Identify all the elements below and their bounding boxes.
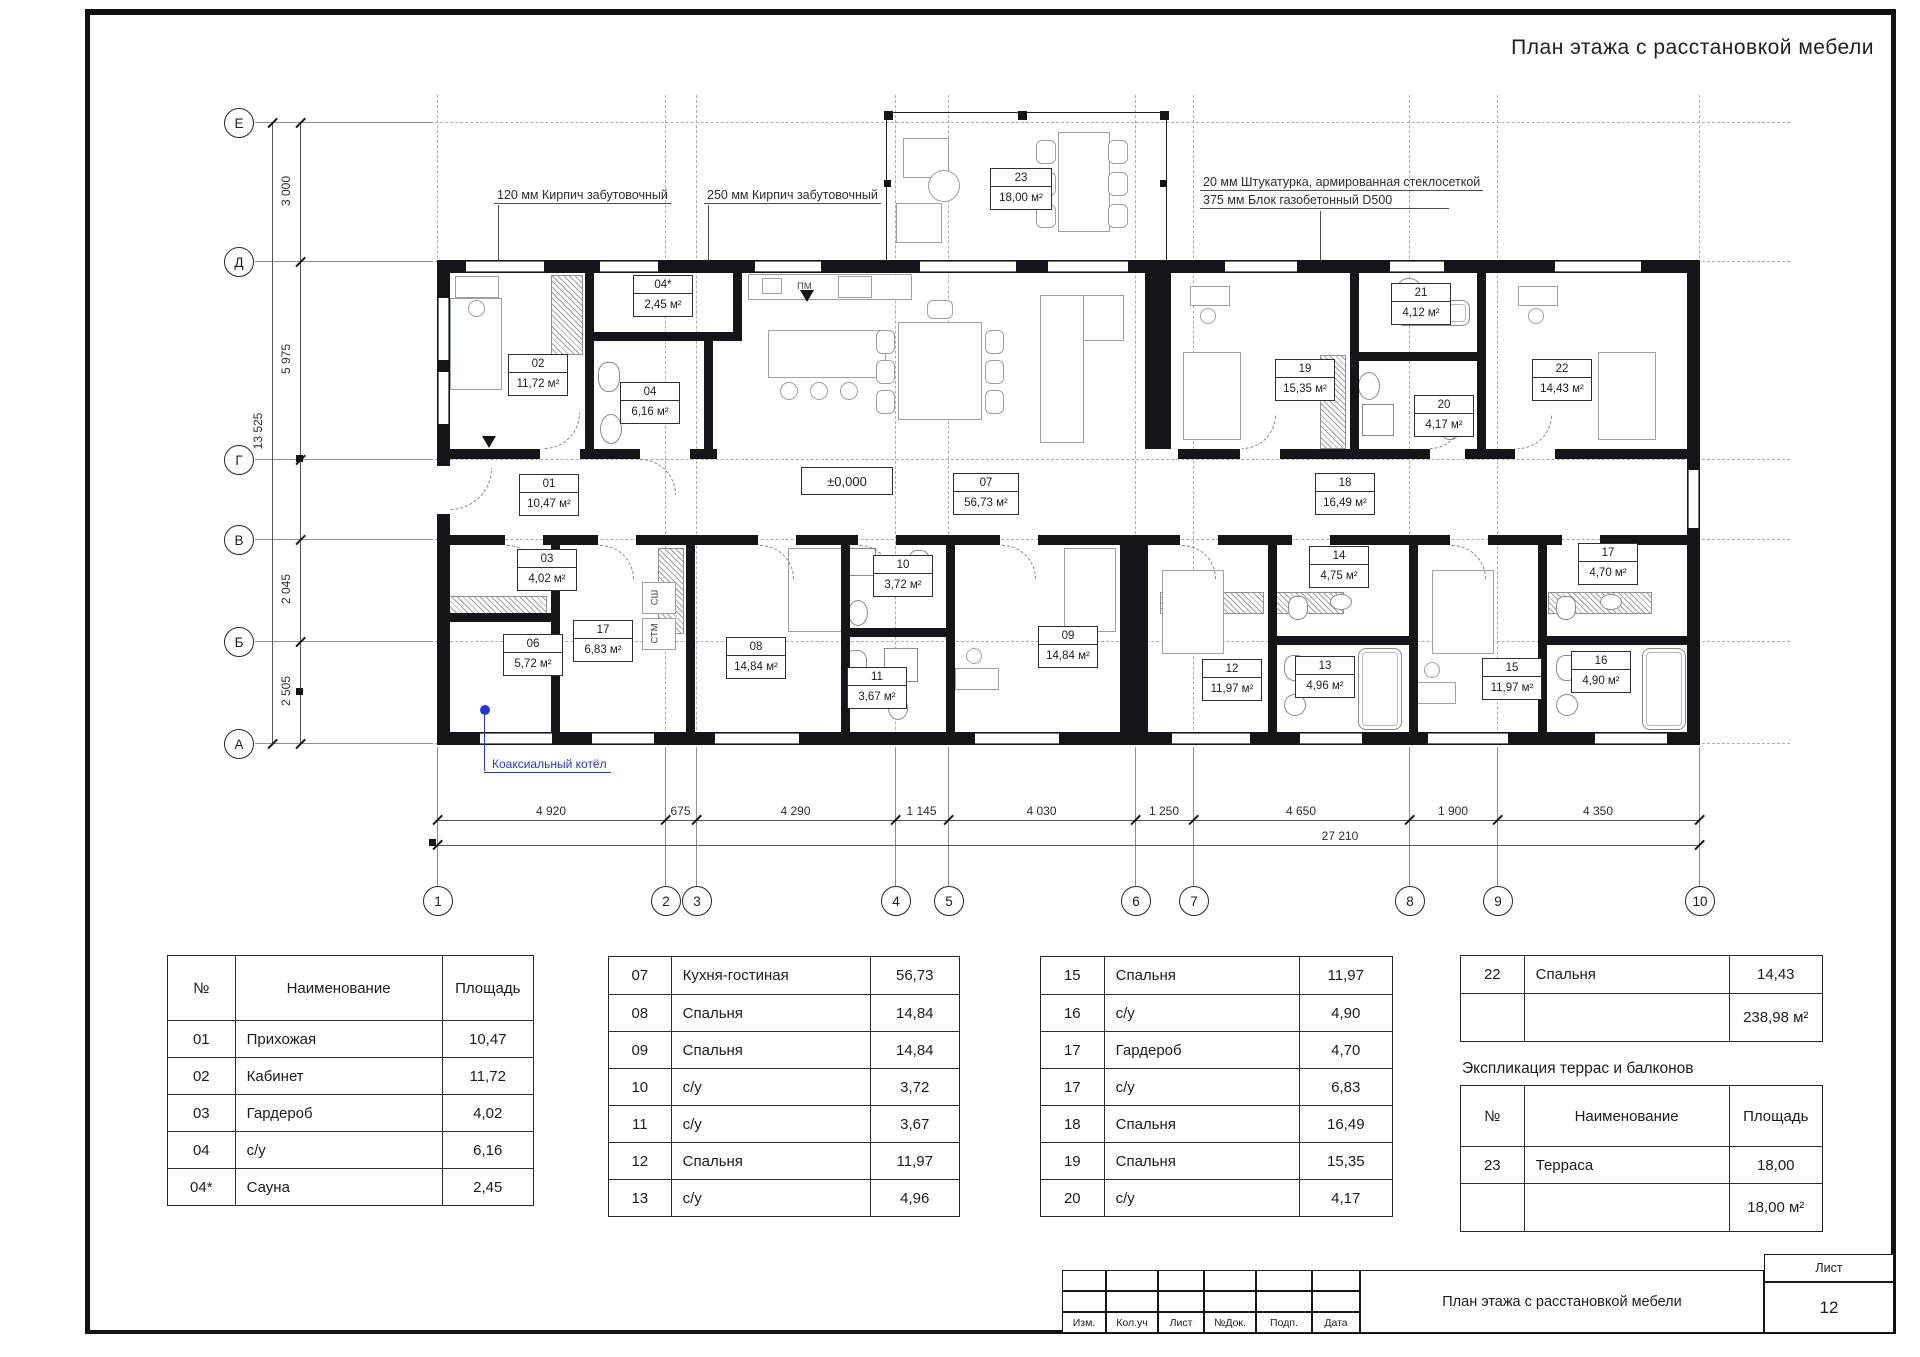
dimension-square xyxy=(296,688,303,695)
table-row: 09Спальня14,84 xyxy=(609,1031,959,1068)
room-number: 19 xyxy=(1276,360,1334,378)
dimension-line-bottom-segments xyxy=(437,820,1699,821)
annotation-plaster: 20 мм Штукатурка, армированная стеклосет… xyxy=(1200,175,1483,191)
extension-line xyxy=(895,748,896,855)
level-mark: ±0,000 xyxy=(801,467,893,495)
room-area: 4,02 м² xyxy=(518,568,576,590)
arrow-icon xyxy=(482,436,496,448)
table-row: №НаименованиеПлощадь xyxy=(1461,1086,1822,1146)
room-label: 0756,73 м² xyxy=(953,473,1019,515)
extension-line xyxy=(665,748,666,855)
furniture-round xyxy=(1528,308,1544,324)
room-label: 1211,97 м² xyxy=(1202,659,1262,701)
wall-segment xyxy=(1350,352,1486,361)
leader-line xyxy=(708,205,709,261)
furniture xyxy=(1183,352,1241,440)
table-cell: 19 xyxy=(1041,1143,1104,1179)
table-cell: с/у xyxy=(671,1069,870,1105)
furniture xyxy=(1432,570,1494,654)
wall-segment xyxy=(1555,449,1700,459)
room-label: 04*2,45 м² xyxy=(633,275,693,317)
toilet xyxy=(1288,596,1308,620)
extension-line xyxy=(255,743,433,744)
sink xyxy=(1330,594,1352,610)
furniture-round xyxy=(780,382,798,400)
table-row: 22Спальня14,43 xyxy=(1461,956,1822,993)
wall-segment xyxy=(884,111,893,120)
furniture-round xyxy=(468,300,485,317)
toilet xyxy=(1556,596,1576,620)
window xyxy=(1555,261,1641,272)
grid-bubble-4: 4 xyxy=(881,886,911,916)
furniture-round xyxy=(966,648,982,664)
stamp-cell xyxy=(1106,1270,1158,1291)
wall-segment xyxy=(690,449,717,459)
table-cell: № xyxy=(168,956,235,1020)
dimension-text: 1 900 xyxy=(1408,804,1498,818)
explication-table-1: №НаименованиеПлощадь01Прихожая10,4702Каб… xyxy=(167,955,534,1206)
wall-segment xyxy=(1465,449,1515,459)
table-cell xyxy=(1461,1184,1524,1231)
boiler-dot xyxy=(480,705,490,715)
extension-line xyxy=(255,261,433,262)
window xyxy=(1688,470,1699,528)
wall-segment xyxy=(1218,535,1292,545)
table-cell: 16 xyxy=(1041,995,1104,1031)
extension-line xyxy=(1135,748,1136,855)
table-cell: с/у xyxy=(235,1132,442,1168)
grid-bubble-8: 8 xyxy=(1395,886,1425,916)
explication-table-2: 07Кухня-гостиная56,7308Спальня14,8409Спа… xyxy=(608,956,960,1217)
page-title: План этажа с расстановкой мебели xyxy=(1511,36,1874,60)
room-number: 13 xyxy=(1296,657,1354,675)
grid-bubble-3: 3 xyxy=(682,886,712,916)
room-area: 6,83 м² xyxy=(574,639,632,661)
wall-segment xyxy=(585,273,594,449)
room-area: 11,97 м² xyxy=(1203,678,1261,700)
table-cell: 4,70 xyxy=(1299,1032,1392,1068)
table-cell: 14,84 xyxy=(870,995,959,1031)
window xyxy=(1225,261,1297,272)
wall-segment xyxy=(1477,273,1486,449)
grid-bubble-Д: Д xyxy=(224,247,254,277)
furniture xyxy=(455,276,499,298)
table-cell: 08 xyxy=(609,995,671,1031)
dimension-text-total: 27 210 xyxy=(1285,829,1395,843)
room-area: 14,84 м² xyxy=(1039,645,1097,667)
chair xyxy=(1108,140,1128,164)
furniture xyxy=(1412,682,1456,704)
wall-segment xyxy=(1018,111,1027,120)
stamp-cell xyxy=(1204,1291,1256,1312)
table-cell: 18,00 xyxy=(1729,1147,1822,1183)
table-cell: Гардероб xyxy=(1104,1032,1299,1068)
table-row: 03Гардероб4,02 xyxy=(168,1094,533,1131)
room-label: 204,17 м² xyxy=(1414,395,1474,437)
room-number: 20 xyxy=(1415,396,1473,414)
stamp-cell xyxy=(1062,1291,1106,1312)
room-area: 14,84 м² xyxy=(727,656,785,678)
dimension-square xyxy=(429,839,436,846)
furniture xyxy=(955,668,999,690)
stamp-cell xyxy=(1158,1291,1204,1312)
room-area: 2,45 м² xyxy=(634,294,692,316)
wall-segment xyxy=(437,613,551,622)
dimension-line-bottom-total xyxy=(437,845,1699,846)
table-cell: 4,02 xyxy=(442,1095,533,1131)
wall-segment xyxy=(1038,535,1180,545)
dimension-text: 4 030 xyxy=(997,804,1087,818)
stamp-cell-label: Подп. xyxy=(1256,1312,1312,1333)
dimension-text: 4 350 xyxy=(1553,804,1643,818)
chair xyxy=(985,330,1004,354)
room-label: 1915,35 м² xyxy=(1275,359,1335,401)
table-cell: Спальня xyxy=(1104,957,1299,994)
wall-segment xyxy=(896,535,1000,545)
table-cell: 18 xyxy=(1041,1106,1104,1142)
table-row: №НаименованиеПлощадь xyxy=(168,956,533,1020)
bubble-stem xyxy=(1409,855,1410,886)
door-arc xyxy=(1182,545,1216,579)
table-row: 01Прихожая10,47 xyxy=(168,1020,533,1057)
room-label: 2318,00 м² xyxy=(990,168,1052,210)
stamp-cell xyxy=(1106,1291,1158,1312)
room-label: 144,75 м² xyxy=(1309,546,1369,588)
room-area: 3,72 м² xyxy=(874,574,932,596)
table-cell: 20 xyxy=(1041,1180,1104,1216)
grid-bubble-Е: Е xyxy=(224,108,254,138)
wall-segment xyxy=(437,449,540,459)
wall-segment xyxy=(704,341,713,449)
door-arc xyxy=(544,413,580,449)
room-number: 06 xyxy=(504,635,562,653)
table-cell: с/у xyxy=(671,1180,870,1216)
table-cell: 03 xyxy=(168,1095,235,1131)
stamp-cell xyxy=(1312,1291,1360,1312)
room-number: 07 xyxy=(954,474,1018,492)
annotation-aerated-block: 375 мм Блок газобетонный D500 xyxy=(1200,193,1449,209)
leader-line xyxy=(1320,211,1321,261)
table-row: 20с/у4,17 xyxy=(1041,1179,1392,1216)
wall-segment xyxy=(1488,535,1562,545)
furniture xyxy=(838,276,872,298)
table-cell: Спальня xyxy=(1104,1143,1299,1179)
room-area: 4,90 м² xyxy=(1572,670,1630,692)
dimension-square xyxy=(296,455,303,462)
stamp-cell xyxy=(1256,1270,1312,1291)
bubble-stem xyxy=(1497,855,1498,886)
table-cell: с/у xyxy=(671,1106,870,1142)
table-cell: 4,90 xyxy=(1299,995,1392,1031)
room-area: 4,96 м² xyxy=(1296,675,1354,697)
sink xyxy=(1556,694,1578,716)
window xyxy=(1390,261,1444,272)
room-label: 0110,47 м² xyxy=(519,474,579,516)
grid-bubble-9: 9 xyxy=(1483,886,1513,916)
room-area: 3,67 м² xyxy=(848,686,906,708)
table-cell: 14,43 xyxy=(1729,956,1822,993)
table-cell xyxy=(1524,994,1729,1041)
room-number: 11 xyxy=(848,668,906,686)
arrow-icon xyxy=(800,290,814,302)
room-label: 1511,97 м² xyxy=(1482,658,1542,700)
drawing-sheet: План этажа с расстановкой мебели 120 мм … xyxy=(0,0,1920,1357)
frame-top xyxy=(85,9,1895,15)
room-area: 16,49 м² xyxy=(1316,492,1374,514)
room-number: 14 xyxy=(1310,547,1368,565)
chair xyxy=(876,390,895,414)
window xyxy=(1300,733,1362,744)
room-number: 16 xyxy=(1572,652,1630,670)
grid-bubble-Г: Г xyxy=(224,445,254,475)
stamp-cell xyxy=(1062,1270,1106,1291)
furniture xyxy=(1598,352,1656,440)
shower xyxy=(1362,404,1394,436)
wall-segment xyxy=(1350,273,1359,449)
stamp-cell xyxy=(1158,1270,1204,1291)
table-row: 238,98 м² xyxy=(1461,993,1822,1041)
grid-bubble-А: А xyxy=(224,729,254,759)
table-cell: 17 xyxy=(1041,1032,1104,1068)
extension-line xyxy=(437,748,438,855)
wall-segment xyxy=(1330,535,1450,545)
table-cell: Гардероб xyxy=(235,1095,442,1131)
table-cell: 14,84 xyxy=(870,1032,959,1068)
furniture xyxy=(1058,132,1110,232)
furniture xyxy=(768,330,886,378)
table-cell: Спальня xyxy=(671,1143,870,1179)
sink xyxy=(600,414,622,444)
table-cell: 01 xyxy=(168,1021,235,1057)
room-label: 1816,49 м² xyxy=(1315,473,1375,515)
room-area: 56,73 м² xyxy=(954,492,1018,514)
wall-segment xyxy=(636,535,758,545)
room-number: 04 xyxy=(621,383,679,401)
bubble-stem xyxy=(1193,855,1194,886)
room-area: 6,16 м² xyxy=(621,401,679,423)
room-area: 14,43 м² xyxy=(1533,378,1591,400)
table-cell: Терраса xyxy=(1524,1147,1729,1183)
frame-left xyxy=(85,9,90,1334)
room-number: 01 xyxy=(520,475,578,493)
door-arc xyxy=(600,545,634,579)
grid-bubble-10: 10 xyxy=(1685,886,1715,916)
table-cell: 11,97 xyxy=(1299,957,1392,994)
wall-segment xyxy=(1145,273,1171,449)
room-number: 04* xyxy=(634,276,692,294)
room-label: 0211,72 м² xyxy=(508,354,568,396)
extension-line xyxy=(255,641,433,642)
titleblock-doc-title: План этажа с расстановкой мебели xyxy=(1360,1270,1764,1333)
room-number: 22 xyxy=(1533,360,1591,378)
frame-right xyxy=(1891,9,1896,1334)
stamp-cell xyxy=(1256,1291,1312,1312)
bubble-stem xyxy=(696,855,697,886)
table-cell: 11 xyxy=(609,1106,671,1142)
table-row: 18Спальня16,49 xyxy=(1041,1105,1392,1142)
window xyxy=(480,733,552,744)
sink xyxy=(1600,594,1622,610)
room-label: 113,67 м² xyxy=(847,667,907,709)
furniture-round xyxy=(928,170,960,202)
wall-segment xyxy=(796,535,858,545)
table-row: 17с/у6,83 xyxy=(1041,1068,1392,1105)
dimension-text: 4 290 xyxy=(751,804,841,818)
bubble-stem xyxy=(1135,855,1136,886)
table-cell: с/у xyxy=(1104,1180,1299,1216)
room-label: 0914,84 м² xyxy=(1038,626,1098,668)
chair xyxy=(876,330,895,354)
stamp-cell-label: Дата xyxy=(1312,1312,1360,1333)
table-cell: Прихожая xyxy=(235,1021,442,1057)
room-area: 15,35 м² xyxy=(1276,378,1334,400)
door-arc xyxy=(1518,415,1552,449)
furniture-round xyxy=(840,382,858,400)
bubble-stem xyxy=(895,855,896,886)
washer-label: СШ xyxy=(649,590,660,606)
stamp-cell-label: №Док. xyxy=(1204,1312,1256,1333)
stamp-cell-label: Кол.уч xyxy=(1106,1312,1158,1333)
room-number: 08 xyxy=(727,638,785,656)
bathtub xyxy=(1642,648,1686,730)
room-label: 103,72 м² xyxy=(873,555,933,597)
table-cell: 10 xyxy=(609,1069,671,1105)
table-row: 19Спальня15,35 xyxy=(1041,1142,1392,1179)
table-cell: Спальня xyxy=(671,995,870,1031)
room-area: 11,97 м² xyxy=(1483,677,1541,699)
wall-segment xyxy=(686,545,695,733)
table-cell: Площадь xyxy=(442,956,534,1020)
wall-segment xyxy=(437,535,505,545)
door-arc xyxy=(450,468,492,510)
titleblock-sheet-number: 12 xyxy=(1764,1282,1894,1333)
table-cell: 6,16 xyxy=(442,1132,533,1168)
furniture xyxy=(1518,286,1558,306)
table-cell: 13 xyxy=(609,1180,671,1216)
extension-line xyxy=(1409,748,1410,855)
table-cell: 3,67 xyxy=(870,1106,959,1142)
table-cell: 17 xyxy=(1041,1069,1104,1105)
annotation-brick-250: 250 мм Кирпич забутовочный xyxy=(704,188,881,204)
table-cell: 09 xyxy=(609,1032,671,1068)
dimension-text: 1 250 xyxy=(1119,804,1209,818)
extension-line xyxy=(948,748,949,855)
furniture xyxy=(762,278,782,294)
table-row: 02Кабинет11,72 xyxy=(168,1057,533,1094)
window xyxy=(600,261,658,272)
room-number: 17 xyxy=(1579,544,1637,562)
dimension-text: 4 650 xyxy=(1256,804,1346,818)
bathtub xyxy=(1358,648,1402,730)
table-cell: 2,45 xyxy=(442,1169,533,1205)
door-arc xyxy=(1002,545,1036,579)
room-number: 15 xyxy=(1483,659,1541,677)
bubble-stem xyxy=(665,855,666,886)
window xyxy=(920,261,1016,272)
room-area: 4,75 м² xyxy=(1310,565,1368,587)
table-cell: 12 xyxy=(609,1143,671,1179)
table-row: 13с/у4,96 xyxy=(609,1179,959,1216)
explication-table-4: 22Спальня14,43238,98 м² xyxy=(1460,955,1823,1042)
wall-segment xyxy=(946,545,955,733)
room-label: 034,02 м² xyxy=(517,549,577,591)
furniture xyxy=(788,548,842,632)
furniture xyxy=(1190,286,1230,306)
furniture xyxy=(1064,548,1116,632)
table-row: 16с/у4,90 xyxy=(1041,994,1392,1031)
window xyxy=(1595,733,1667,744)
table-row: 18,00 м² xyxy=(1461,1183,1822,1231)
window xyxy=(1172,733,1250,744)
grid-axis-line xyxy=(250,459,1790,460)
chair xyxy=(985,360,1004,384)
table-cell: 4,17 xyxy=(1299,1180,1392,1216)
chair xyxy=(876,360,895,384)
table-row: 17Гардероб4,70 xyxy=(1041,1031,1392,1068)
table-cell: 10,47 xyxy=(442,1021,533,1057)
grid-bubble-В: В xyxy=(224,525,254,555)
grid-bubble-7: 7 xyxy=(1179,886,1209,916)
grid-bubble-5: 5 xyxy=(934,886,964,916)
stamp-cell xyxy=(1204,1270,1256,1291)
door-arc xyxy=(640,459,676,495)
room-area: 11,72 м² xyxy=(509,373,567,395)
wall-segment xyxy=(543,535,598,545)
washer-label: СТМ xyxy=(650,623,661,643)
table-cell: 04 xyxy=(168,1132,235,1168)
table-cell: Спальня xyxy=(671,1032,870,1068)
table-row: 10с/у3,72 xyxy=(609,1068,959,1105)
chair xyxy=(927,300,953,319)
dimension-text: 2 045 xyxy=(279,552,293,626)
wall-segment xyxy=(1280,449,1430,459)
table-row: 07Кухня-гостиная56,73 xyxy=(609,957,959,994)
furniture-round xyxy=(1200,308,1216,324)
stamp-cell-label: Изм. xyxy=(1062,1312,1106,1333)
window xyxy=(715,733,799,744)
stamp-cell xyxy=(1312,1270,1360,1291)
extension-line xyxy=(255,459,433,460)
table-cell: Наименование xyxy=(1524,1086,1729,1146)
annotation-brick-120: 120 мм Кирпич забутовочный xyxy=(494,188,671,204)
table-cell: 16,49 xyxy=(1299,1106,1392,1142)
terrace-heading: Экспликация террас и балконов xyxy=(1462,1060,1694,1078)
table-cell: 04* xyxy=(168,1169,235,1205)
room-number: 21 xyxy=(1392,284,1450,302)
table-cell: Кабинет xyxy=(235,1058,442,1094)
table-cell: с/у xyxy=(1104,1069,1299,1105)
table-row: 11с/у3,67 xyxy=(609,1105,959,1142)
room-area: 10,47 м² xyxy=(520,493,578,515)
table-cell: 02 xyxy=(168,1058,235,1094)
terrace-table: №НаименованиеПлощадь23Терраса18,0018,00 … xyxy=(1460,1085,1823,1232)
wall-segment xyxy=(1538,636,1696,645)
room-label: 0814,84 м² xyxy=(726,637,786,679)
chair xyxy=(1036,140,1056,164)
wall-segment xyxy=(1160,180,1167,187)
table-cell: 4,96 xyxy=(870,1180,959,1216)
chair xyxy=(985,390,1004,414)
furniture xyxy=(898,322,982,420)
explication-table-3: 15Спальня11,9716с/у4,9017Гардероб4,7017с… xyxy=(1040,956,1393,1217)
leader-line xyxy=(498,205,499,261)
room-number: 10 xyxy=(874,556,932,574)
room-number: 09 xyxy=(1039,627,1097,645)
room-area: 4,70 м² xyxy=(1579,562,1637,584)
table-cell: Спальня xyxy=(1524,956,1729,993)
room-label: 2214,43 м² xyxy=(1532,359,1592,401)
furniture-round xyxy=(810,382,828,400)
